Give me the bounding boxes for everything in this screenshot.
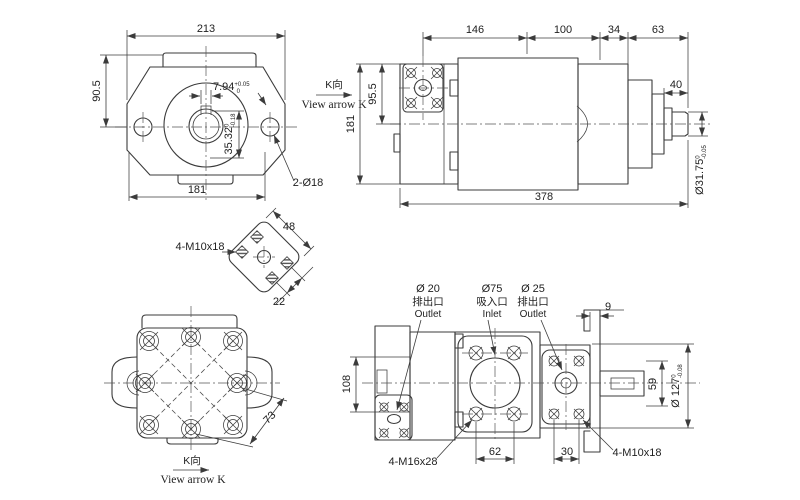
dim-flange-height: 95.5 bbox=[367, 83, 379, 104]
port-name-en: Inlet bbox=[483, 309, 502, 320]
dim-seg1: 146 bbox=[466, 24, 484, 36]
port-name-en: Outlet bbox=[415, 309, 442, 320]
dim-pitch-long: 48 bbox=[283, 221, 295, 233]
dim-width-top: 213 bbox=[197, 23, 215, 35]
view-arrow-label-cn: K向 bbox=[183, 454, 201, 467]
port-name-cn: 排出口 bbox=[412, 295, 444, 308]
thread-callout: 4-M10x18 bbox=[176, 241, 225, 253]
port-name-en: Outlet bbox=[520, 309, 547, 320]
port-dia: Ø 20 bbox=[416, 283, 440, 295]
port-name-cn: 吸入口 bbox=[476, 296, 508, 308]
dim-seg4: 63 bbox=[652, 24, 664, 36]
dim-pitch-short: 22 bbox=[273, 296, 285, 308]
drawing-page: 213 90.5 181 7.94+0.050 35.320-0.18 2-Ø1… bbox=[0, 0, 800, 500]
dim-seg2: 100 bbox=[554, 24, 572, 36]
view-arrow-label-cn: K向 bbox=[325, 78, 343, 91]
port-dia: Ø75 bbox=[482, 283, 503, 295]
dim-body-height: 108 bbox=[341, 375, 353, 393]
thread-callout-right: 4-M10x18 bbox=[613, 447, 662, 459]
dim-body-height: 181 bbox=[345, 115, 357, 133]
port-name-cn: 排出口 bbox=[517, 295, 549, 308]
view-arrow-label-en: View arrow K bbox=[301, 99, 367, 111]
dim-width-bottom: 181 bbox=[188, 184, 206, 196]
dim-height-left: 90.5 bbox=[91, 80, 103, 101]
dim-bolt-pitch-a: 62 bbox=[489, 446, 501, 458]
dim-shaft-length: 40 bbox=[670, 79, 682, 91]
pump-engineering-drawing: 213 90.5 181 7.94+0.050 35.320-0.18 2-Ø1… bbox=[0, 0, 800, 500]
view-arrow-label-en: View arrow K bbox=[160, 474, 226, 486]
port-dia: Ø 25 bbox=[521, 283, 545, 295]
mount-holes-label: 2-Ø18 bbox=[293, 177, 324, 189]
dim-overall-length: 378 bbox=[535, 191, 553, 203]
dim-spigot-height: 59 bbox=[647, 378, 659, 390]
dim-seg3: 34 bbox=[608, 24, 620, 36]
thread-callout-left: 4-M16x28 bbox=[389, 456, 438, 468]
dim-plate-thickness: 9 bbox=[605, 301, 611, 313]
dim-bolt-pitch-b: 30 bbox=[561, 446, 573, 458]
